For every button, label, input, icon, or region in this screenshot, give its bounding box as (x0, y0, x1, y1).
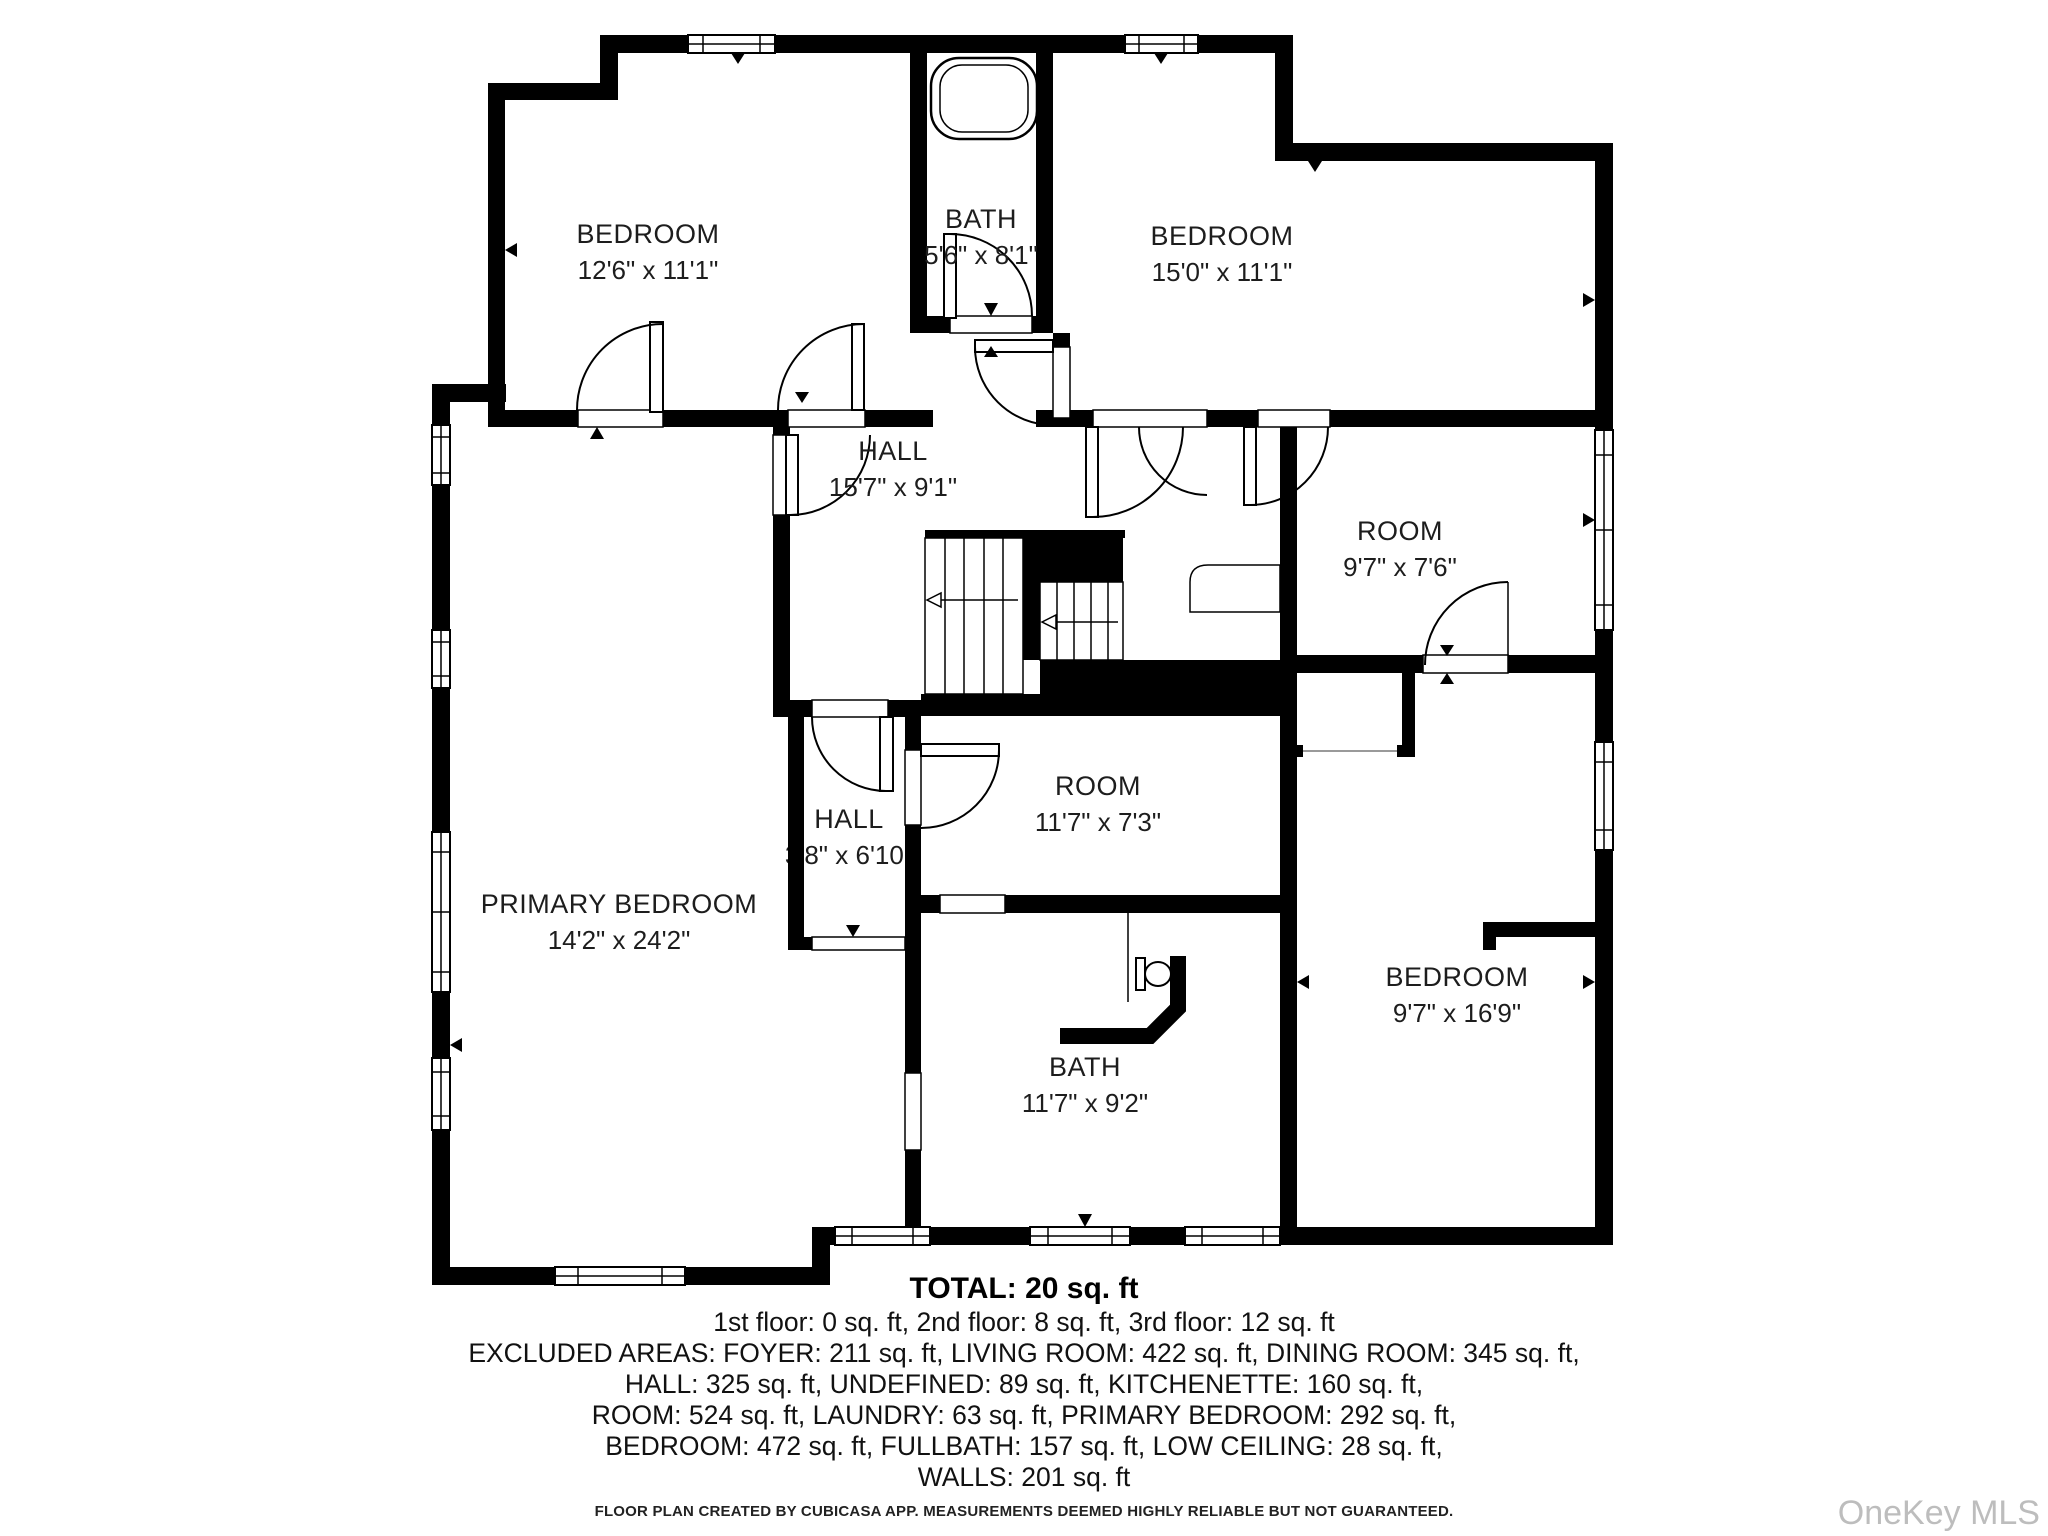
stair-arrow (927, 593, 1018, 607)
door (812, 700, 893, 791)
room-dimensions: 15'7" x 9'1" (829, 472, 957, 502)
door-opening (812, 937, 905, 950)
door (778, 324, 865, 427)
room-label: ROOM (1357, 516, 1443, 546)
room-label: BEDROOM (1150, 221, 1293, 251)
room-labels-under: HALL3'8" x 6'10" (785, 804, 913, 870)
window (432, 1058, 450, 1130)
door (577, 322, 663, 427)
toilet (1136, 958, 1171, 990)
window (1030, 1227, 1130, 1245)
room-dimensions: 9'7" x 7'6" (1343, 552, 1457, 582)
room-dimensions: 15'0" x 11'1" (1152, 257, 1293, 287)
room-label: PRIMARY BEDROOM (481, 889, 758, 919)
window (835, 1227, 930, 1245)
room-label: ROOM (1055, 771, 1141, 801)
area-summary-line: BEDROOM: 472 sq. ft, FULLBATH: 157 sq. f… (605, 1431, 1442, 1461)
room-dimensions: 9'7" x 16'9" (1393, 998, 1521, 1028)
room-label: BATH (945, 204, 1017, 234)
area-summary-line: 1st floor: 0 sq. ft, 2nd floor: 8 sq. ft… (713, 1307, 1335, 1337)
window (432, 832, 450, 992)
window (1595, 430, 1613, 630)
room-label: HALL (858, 436, 928, 466)
door-opening (940, 895, 1005, 913)
disclaimer: FLOOR PLAN CREATED BY CUBICASA APP. MEAS… (595, 1503, 1454, 1520)
door (905, 744, 999, 828)
door-opening (905, 1073, 921, 1150)
window (1595, 742, 1613, 850)
area-summary-line: HALL: 325 sq. ft, UNDEFINED: 89 sq. ft, … (625, 1369, 1423, 1399)
window (1125, 35, 1198, 53)
total-area: TOTAL: 20 sq. ft (910, 1272, 1139, 1305)
window (688, 35, 775, 53)
stair-arrow (1042, 615, 1118, 629)
room-dimensions: 14'2" x 24'2" (548, 925, 691, 955)
room-dimensions: 11'7" x 9'2" (1022, 1088, 1148, 1118)
area-summary-line: WALLS: 201 sq. ft (918, 1462, 1131, 1492)
area-summary-lines: 1st floor: 0 sq. ft, 2nd floor: 8 sq. ft… (468, 1307, 1579, 1492)
floor-plan: HALL3'8" x 6'10" (0, 0, 2048, 1536)
window (1185, 1227, 1280, 1245)
area-summary-line: EXCLUDED AREAS: FOYER: 211 sq. ft, LIVIN… (468, 1338, 1579, 1368)
room-label: BATH (1049, 1052, 1121, 1082)
mls-watermark: OneKey MLS (1838, 1494, 2040, 1532)
room-dimensions: 12'6" x 11'1" (578, 255, 719, 285)
door (1086, 410, 1207, 517)
room-dimensions: 3'8" x 6'10" (785, 840, 913, 870)
window (555, 1267, 685, 1285)
area-summary: TOTAL: 20 sq. ft 1st floor: 0 sq. ft, 2n… (468, 1272, 1579, 1520)
door (1423, 582, 1508, 673)
room-label: BEDROOM (1385, 962, 1528, 992)
room-dimensions: 5'6" x 8'1" (924, 240, 1038, 270)
stair-landing (1190, 565, 1280, 612)
room-label: HALL (814, 804, 884, 834)
window (432, 425, 450, 485)
area-summary-line: ROOM: 524 sq. ft, LAUNDRY: 63 sq. ft, PR… (592, 1400, 1457, 1430)
room-dimensions: 11'7" x 7'3" (1035, 807, 1161, 837)
room-label: BEDROOM (576, 219, 719, 249)
window (432, 630, 450, 688)
